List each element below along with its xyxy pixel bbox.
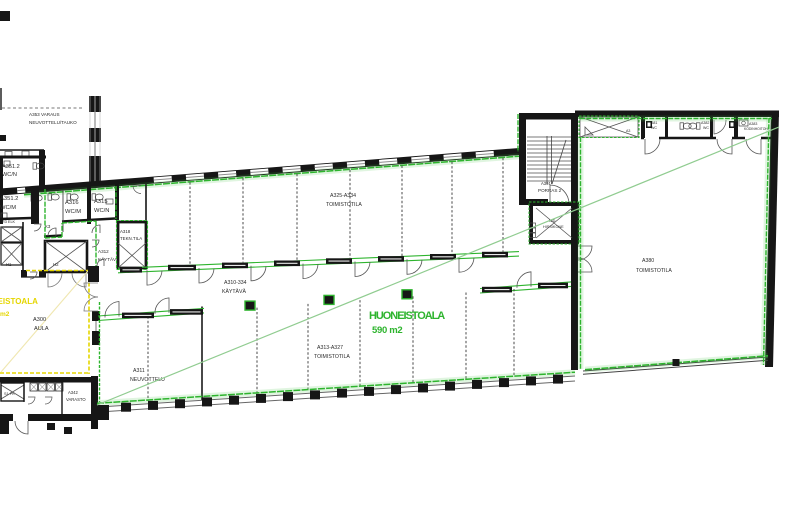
svg-text:NEUVOTTELU/TAUKO: NEUVOTTELU/TAUKO <box>29 120 77 125</box>
svg-text:590 m2: 590 m2 <box>372 325 402 336</box>
svg-text:VARASTO: VARASTO <box>66 397 86 402</box>
svg-text:WC/N: WC/N <box>94 208 109 214</box>
svg-text:A383: A383 <box>749 122 757 126</box>
svg-text:TOIMISTOTILA: TOIMISTOTILA <box>636 268 672 274</box>
svg-text:A351.2: A351.2 <box>2 164 20 170</box>
svg-text:KÄYTÄVÄ: KÄYTÄVÄ <box>222 288 246 295</box>
svg-text:A310-334: A310-334 <box>224 280 247 286</box>
svg-text:HISSIKONE: HISSIKONE <box>543 225 564 229</box>
svg-text:HUONEISTOALA: HUONEISTOALA <box>369 310 445 322</box>
svg-text:A3: A3 <box>626 129 630 133</box>
svg-text:A312: A312 <box>98 249 109 254</box>
svg-text:A342: A342 <box>68 390 78 395</box>
svg-text:A382: A382 <box>701 121 709 125</box>
svg-text:A318: A318 <box>120 229 131 234</box>
svg-text:A325-A334: A325-A334 <box>330 193 356 199</box>
svg-text:KODINHOITOH.: KODINHOITOH. <box>744 127 769 131</box>
svg-text:A353 VARAUS: A353 VARAUS <box>29 112 60 117</box>
svg-text:A313-A327: A313-A327 <box>317 345 343 351</box>
svg-text:A351.2: A351.2 <box>0 196 18 202</box>
svg-text:WC/M: WC/M <box>0 205 16 211</box>
svg-text:K3: K3 <box>45 224 51 229</box>
svg-text:A380: A380 <box>642 258 654 264</box>
svg-text:WC: WC <box>703 126 709 130</box>
svg-text:TOIMISTOTILA: TOIMISTOTILA <box>314 354 350 360</box>
svg-text:A300: A300 <box>33 317 46 323</box>
svg-text:H1: H1 <box>6 262 12 267</box>
svg-text:TEKN.TILA: TEKN.TILA <box>120 236 142 241</box>
svg-text:S1 PK: S1 PK <box>4 392 15 396</box>
svg-text:AULA: AULA <box>34 326 49 332</box>
svg-text:TOIMISTOTILA: TOIMISTOTILA <box>326 202 362 208</box>
svg-text:A311: A311 <box>133 368 145 374</box>
svg-text:A316: A316 <box>65 200 79 206</box>
svg-text:m2: m2 <box>0 311 10 318</box>
svg-text:WC/M: WC/M <box>65 209 81 215</box>
svg-text:R3 ELK: R3 ELK <box>2 220 16 224</box>
svg-text:HUONEISTOALA: HUONEISTOALA <box>0 297 38 306</box>
svg-text:WC/N: WC/N <box>2 172 17 178</box>
svg-text:H2: H2 <box>53 262 59 267</box>
